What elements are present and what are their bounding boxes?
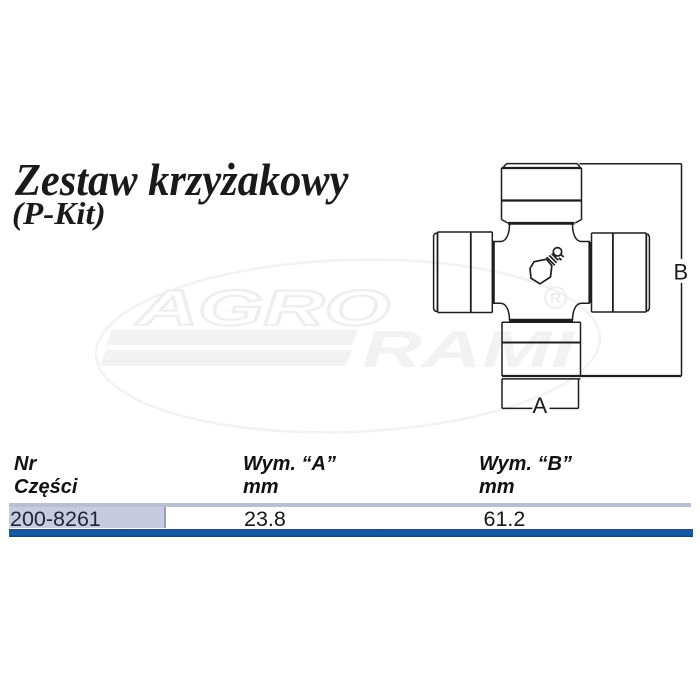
- svg-text:RAMI: RAMI: [362, 321, 576, 379]
- svg-text:B: B: [674, 260, 689, 285]
- svg-text:R: R: [550, 290, 561, 307]
- svg-text:A: A: [533, 393, 548, 418]
- svg-text:AGRO: AGRO: [134, 280, 391, 336]
